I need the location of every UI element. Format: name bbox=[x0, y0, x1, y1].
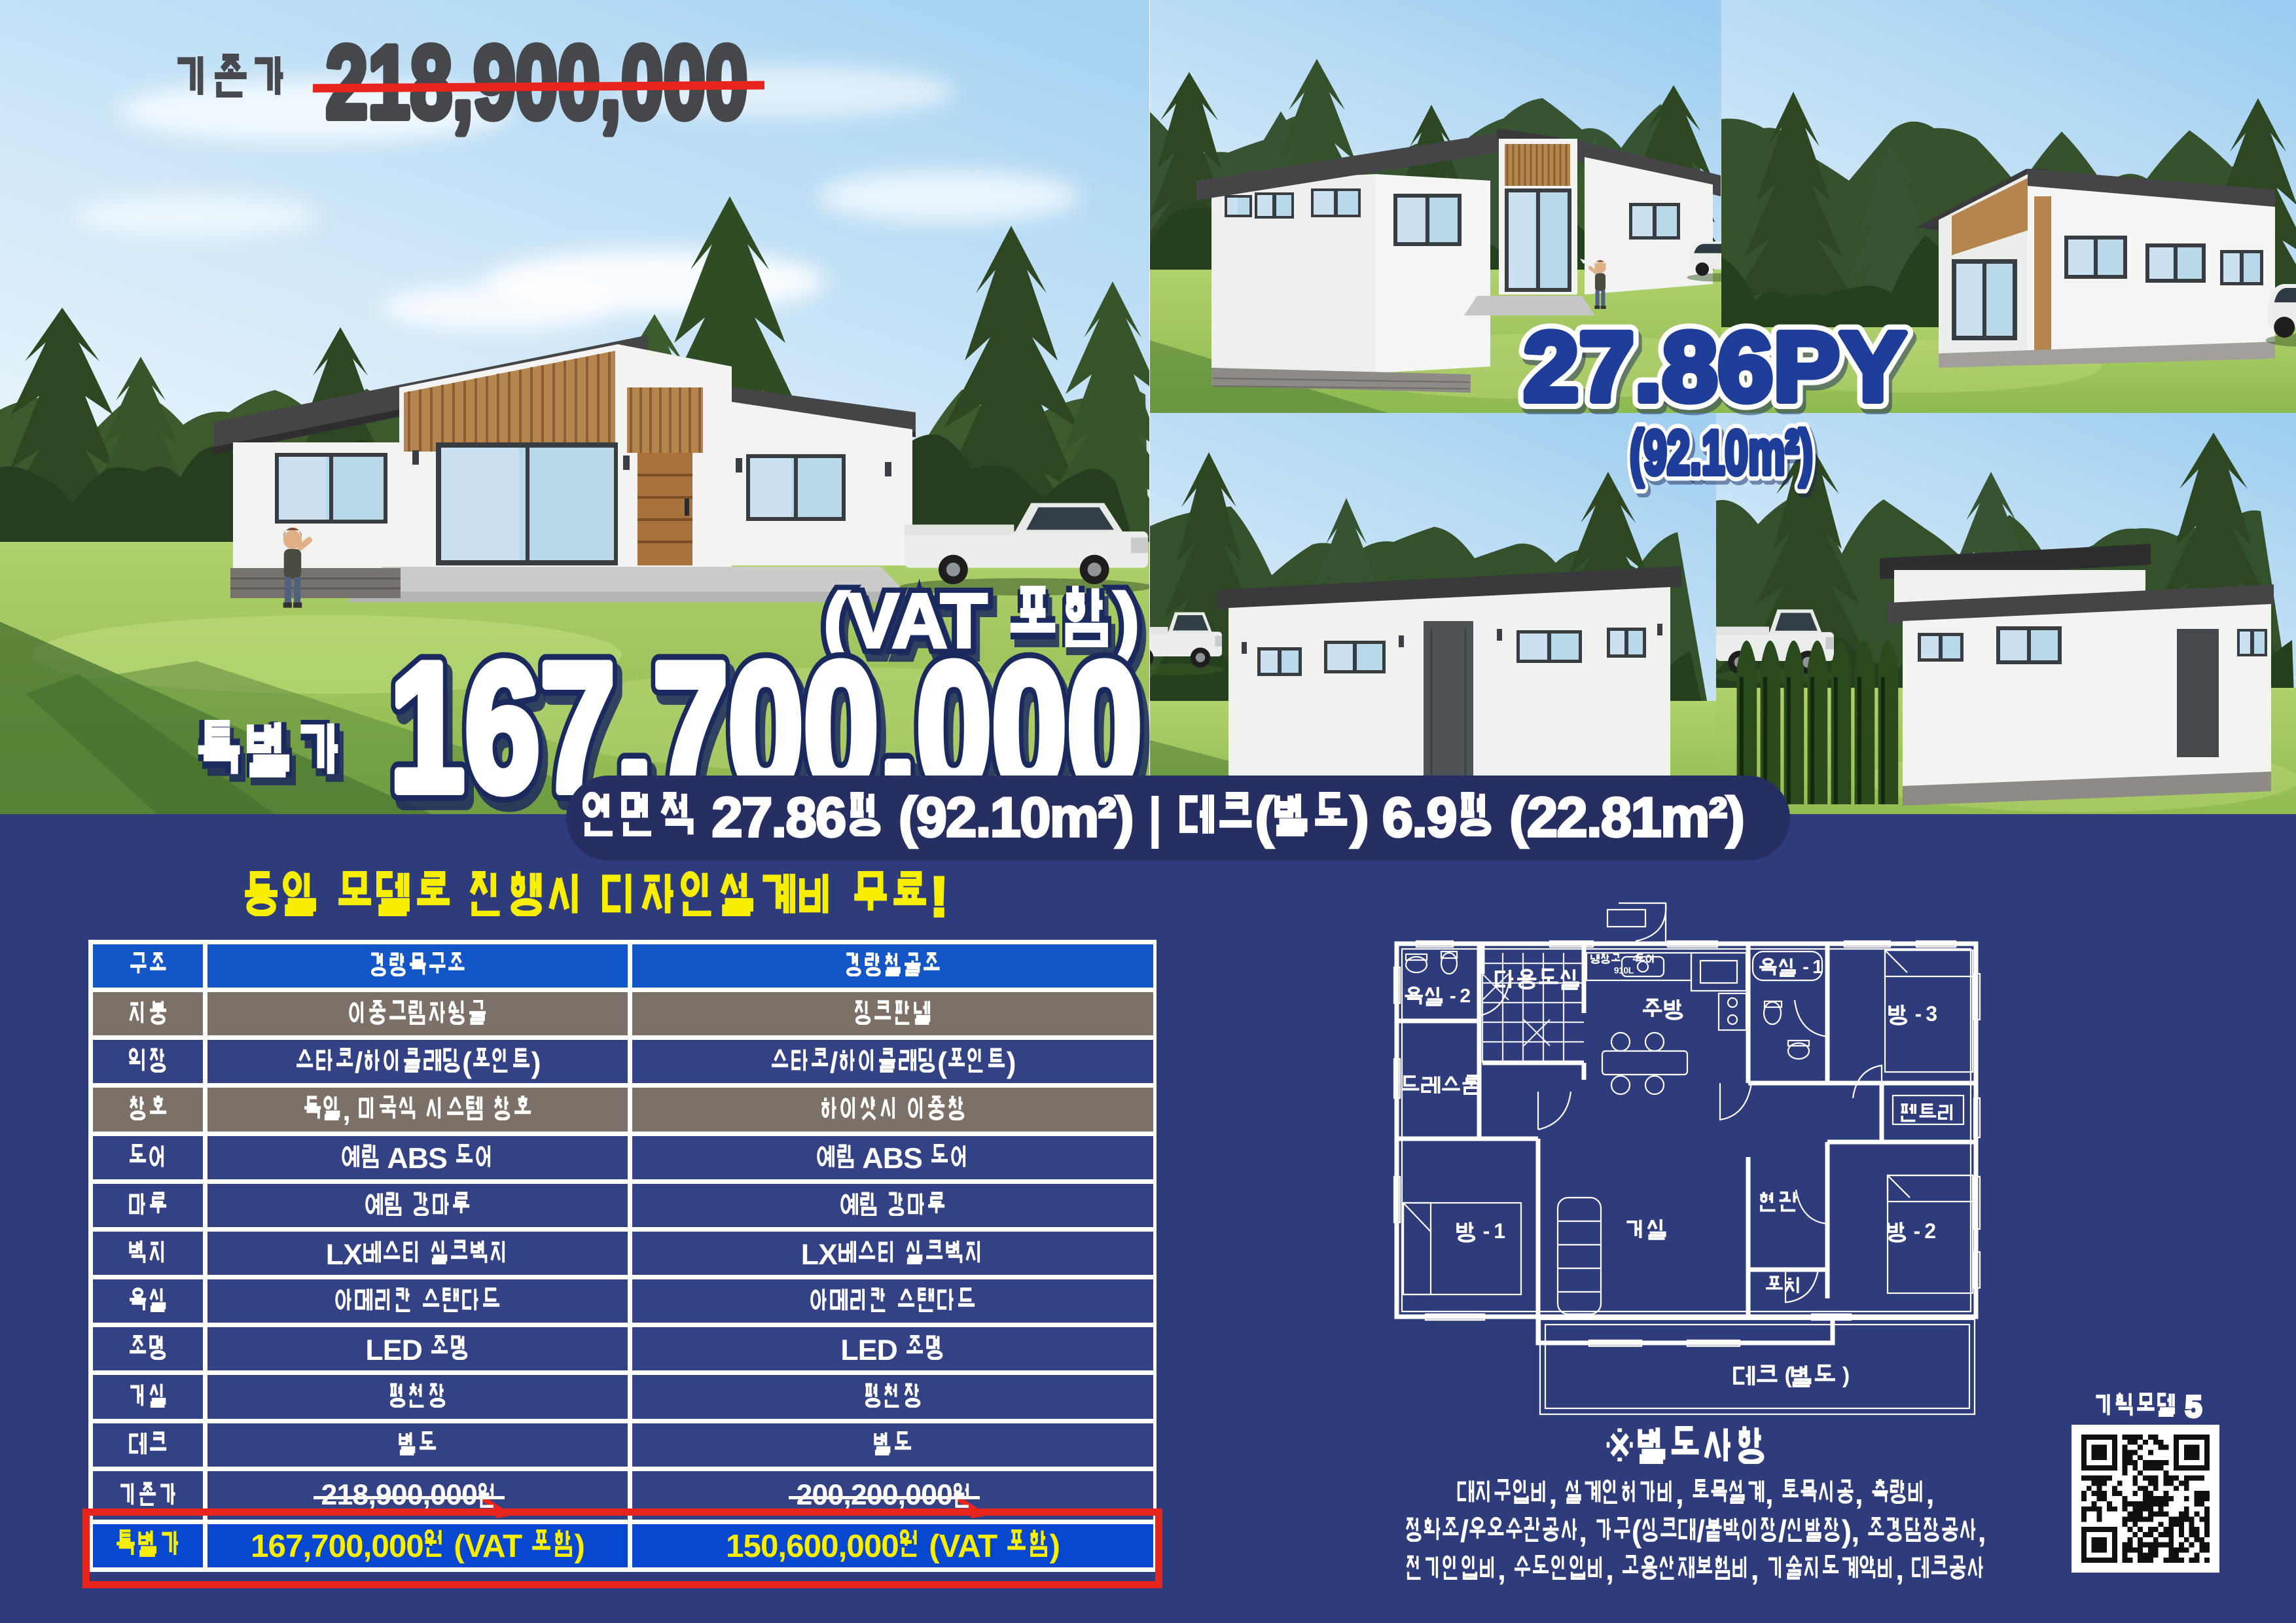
svg-text:0: 0 bbox=[1623, 965, 1628, 975]
svg-text:2: 2 bbox=[1924, 1219, 1936, 1243]
svg-text:1: 1 bbox=[1812, 957, 1823, 978]
svg-text:1: 1 bbox=[1619, 965, 1624, 975]
svg-text:1: 1 bbox=[1494, 1219, 1505, 1243]
svg-text:27.86PY: 27.86PY bbox=[1524, 312, 1907, 421]
svg-text:9: 9 bbox=[1614, 965, 1619, 975]
svg-text:-: - bbox=[1483, 1219, 1490, 1243]
svg-text:L: L bbox=[1628, 965, 1634, 975]
svg-text:-: - bbox=[1914, 1219, 1921, 1243]
svg-text:-: - bbox=[1450, 985, 1456, 1007]
svg-text:2: 2 bbox=[1460, 985, 1471, 1007]
svg-text:-: - bbox=[1915, 1002, 1922, 1026]
svg-text:): ) bbox=[1842, 1363, 1850, 1388]
svg-text:(92.10m²): (92.10m²) bbox=[1630, 418, 1813, 488]
svg-text:3: 3 bbox=[1926, 1002, 1937, 1026]
svg-text:-: - bbox=[1803, 957, 1809, 978]
